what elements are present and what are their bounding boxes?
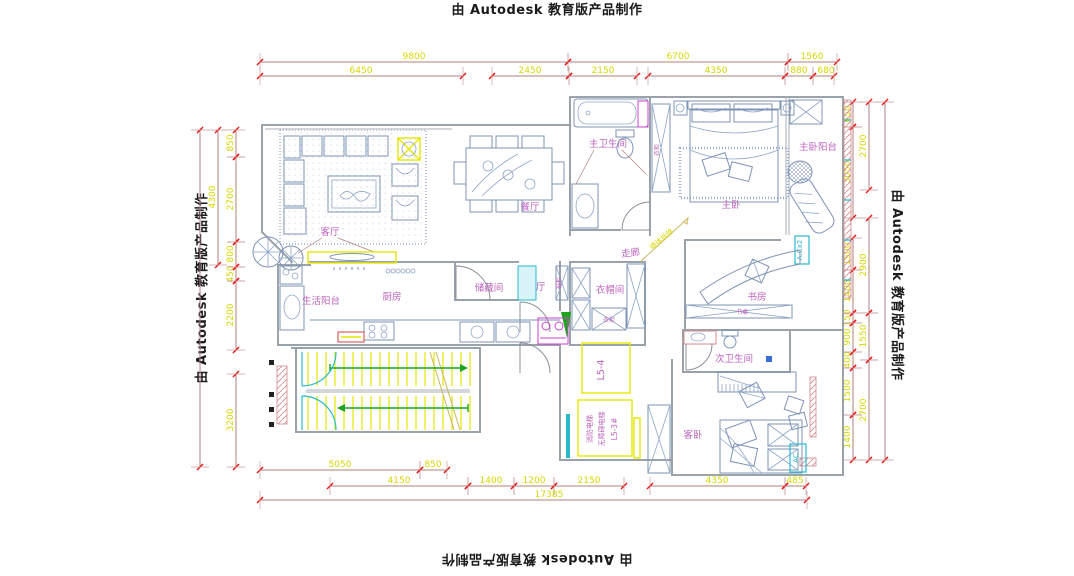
dim-value: 1550 [859, 324, 869, 347]
table-setting [472, 154, 535, 196]
double-bed [688, 101, 780, 202]
shaft-x [648, 405, 670, 473]
laundry-sink [280, 266, 304, 330]
dimensions-top: 9800 6700 1560 6450 2450 2150 4350 880 6… [257, 52, 840, 85]
dim-value: 2700 [859, 134, 869, 157]
dim-value: 2150 [578, 476, 601, 486]
stair-treads [308, 352, 470, 430]
dim-value: 680 [817, 66, 834, 76]
watermark-bottom: 由 Autodesk 教育版产品制作 [441, 551, 632, 567]
dim-value: 5050 [329, 460, 352, 470]
spice-row [386, 269, 415, 273]
floor-plan-canvas: 由 Autodesk 教育版产品制作 由 Autodesk 教育版产品制作 由 … [0, 0, 1074, 576]
cloakroom: 衣帽间 衣柜 [572, 264, 645, 330]
master-bathroom: 主卫生间 [572, 99, 650, 230]
bath-heater [638, 101, 648, 127]
dim-value: 17385 [535, 490, 564, 500]
hatched-balcony-wall [844, 100, 851, 298]
study-shelf: 书桌 [686, 305, 792, 318]
room-label-living: 客厅 [320, 226, 340, 238]
hatched-guest-wall [810, 377, 816, 437]
svg-text:AC: AC [792, 453, 800, 463]
dim-value: 485 [786, 476, 803, 486]
dim-value: 4150 [388, 476, 411, 486]
dim-value: 4300 [208, 185, 218, 208]
dim-value: 3200 [226, 408, 236, 431]
svg-text:书桌: 书桌 [736, 308, 748, 316]
fire-elevator-label: 消防电梯 [585, 415, 594, 443]
dim-value: 1200 [523, 476, 546, 486]
dim-value: 850 [424, 460, 441, 470]
ac-unit2: A.Cx2 [795, 236, 809, 264]
toilet2 [722, 330, 738, 348]
dim-value: 1500 [843, 379, 853, 402]
bath-vanity [572, 184, 598, 228]
dim-value: 2700 [859, 398, 869, 421]
bedroom-rug [680, 148, 788, 198]
dim-value: 2900 [859, 253, 869, 276]
room-label-master-bath: 主卫生间 [589, 138, 627, 150]
vanity2 [684, 331, 716, 344]
room-label-service-balcony: 生活阳台 [302, 295, 340, 307]
dim-value: 4350 [706, 476, 729, 486]
cooktop [364, 322, 394, 340]
closet-top-right [790, 100, 822, 124]
room-label-corridor: 走廊 [620, 246, 641, 261]
dim-value: 850 [226, 134, 236, 151]
dim-value: 2450 [519, 66, 542, 76]
dim-value: 2200 [226, 303, 236, 326]
dim-value: 6450 [350, 66, 373, 76]
study: 书桌 书房 [686, 250, 800, 318]
watermark-left: 由 Autodesk 教育版产品制作 [194, 192, 210, 383]
dim-value: 1400 [480, 476, 503, 486]
watermark-right: 由 Autodesk 教育版产品制作 [889, 189, 905, 380]
room-label-cloakroom: 衣帽间 [596, 284, 625, 296]
study-chair [745, 259, 769, 283]
chaise-lounge [787, 176, 837, 236]
kitchen: 厨房 [310, 266, 568, 344]
guest-chairs [784, 396, 807, 430]
dim-value: 2700 [226, 187, 236, 210]
floor-drain [766, 356, 772, 362]
dim-value: 1560 [801, 52, 824, 62]
room-label-kitchen: 厨房 [382, 291, 401, 303]
dim-value: 800 [226, 245, 236, 262]
dim-value: 6700 [667, 52, 690, 62]
svg-text:鞋柜: 鞋柜 [555, 277, 563, 289]
accessible-elevator-label: 无障碍电梯 [597, 412, 606, 447]
shoe-cabinet: 鞋柜 [555, 266, 568, 300]
dim-value: 4350 [705, 66, 728, 76]
dim-value: 9800 [403, 52, 426, 62]
dim-value: 1400 [843, 425, 853, 448]
dim-value: 2150 [592, 66, 615, 76]
elevator-cyan-wall [566, 414, 570, 458]
second-bathroom: 次卫生间 [684, 330, 772, 370]
svg-text:墙体拆除: 墙体拆除 [648, 227, 675, 252]
room-label-guest-bed: 客卧 [683, 429, 703, 441]
guest-desk [718, 372, 796, 392]
dimensions-bottom: 5050 850 4150 1400 1200 2150 4350 485 17… [257, 460, 810, 509]
demolition-annotation: 墙体拆除 [640, 218, 688, 262]
staircase [302, 352, 470, 430]
dim-value: 880 [790, 66, 807, 76]
dim-value: 900 [843, 328, 853, 345]
shaft-code-label: L5-4 [596, 360, 607, 381]
wardrobe: 衣柜 [652, 104, 670, 192]
elevator-block: L5-4 消防电梯 无障碍电梯 L5-3# [566, 343, 670, 473]
room-label-master-balcony: 主卧阳台 [799, 141, 837, 153]
room-label-dining: 餐厅 [520, 201, 540, 213]
room-label-study: 书房 [747, 291, 766, 303]
room-label-second-bath: 次卫生间 [715, 353, 753, 365]
master-balcony: 主卧阳台 A.Cx2 [787, 141, 837, 264]
cloak-wardrobe-label: 衣柜 [603, 316, 615, 324]
kitchen-door-panel [518, 266, 536, 300]
hatched-stair-wall [277, 366, 287, 424]
dining-room: 餐厅 [454, 136, 564, 213]
guest-bedroom: 客卧 AC [683, 372, 807, 473]
room-label-master-bed: 主卧 [721, 199, 741, 211]
wardrobe-label: 衣柜 [653, 144, 661, 156]
elevator-code-label: L5-3# [610, 418, 619, 441]
cad-floorplan-screenshot: 由 Autodesk 教育版产品制作 由 Autodesk 教育版产品制作 由 … [0, 0, 1074, 576]
watermark-top: 由 Autodesk 教育版产品制作 [451, 2, 642, 18]
corridor: 走廊 [620, 246, 641, 261]
small-appliance [338, 332, 364, 342]
